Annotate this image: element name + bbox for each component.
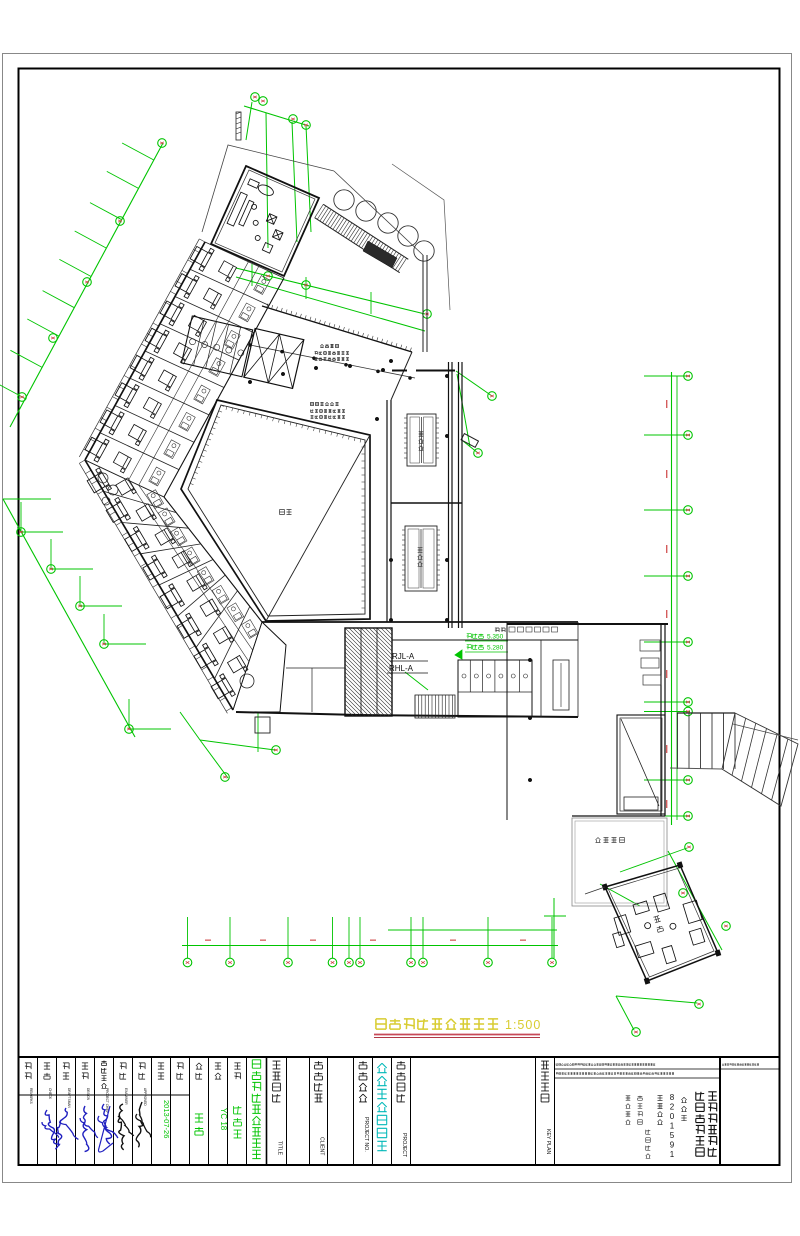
svg-text:EXAMINER: EXAMINER [124,1088,128,1105]
svg-text:5.350: 5.350 [487,634,504,641]
svg-text:5: 5 [670,1131,675,1140]
svg-text:1: 1 [670,1150,675,1159]
svg-text:KEY PLAN: KEY PLAN [545,1129,551,1155]
svg-text:APPROVED: APPROVED [143,1088,147,1106]
svg-text:TITLE: TITLE [277,1141,283,1156]
svg-text:YC 18: YC 18 [219,1108,228,1131]
svg-text:PROJECT NO.: PROJECT NO. [363,1117,369,1152]
svg-text:DESIGN: DESIGN [86,1088,90,1101]
svg-text:2: 2 [670,1103,675,1112]
svg-text:REMARKS: REMARKS [29,1088,33,1104]
svg-text:5.280: 5.280 [487,645,504,652]
svg-text:9: 9 [670,1141,675,1150]
svg-text:1:500: 1:500 [505,1018,541,1032]
svg-text:0: 0 [670,1112,675,1121]
svg-text:DRAFTSMAN: DRAFTSMAN [67,1088,71,1109]
svg-text:1: 1 [670,1122,675,1131]
svg-text:CLIENT: CLIENT [319,1137,325,1156]
svg-text:CHECK: CHECK [48,1088,52,1100]
svg-text:RHL-A: RHL-A [389,664,414,673]
svg-text:PROJECT: PROJECT [401,1133,407,1158]
svg-text:2013-07-26: 2013-07-26 [162,1100,171,1138]
svg-text:RJL-A: RJL-A [392,652,415,661]
svg-text:8: 8 [670,1093,675,1102]
